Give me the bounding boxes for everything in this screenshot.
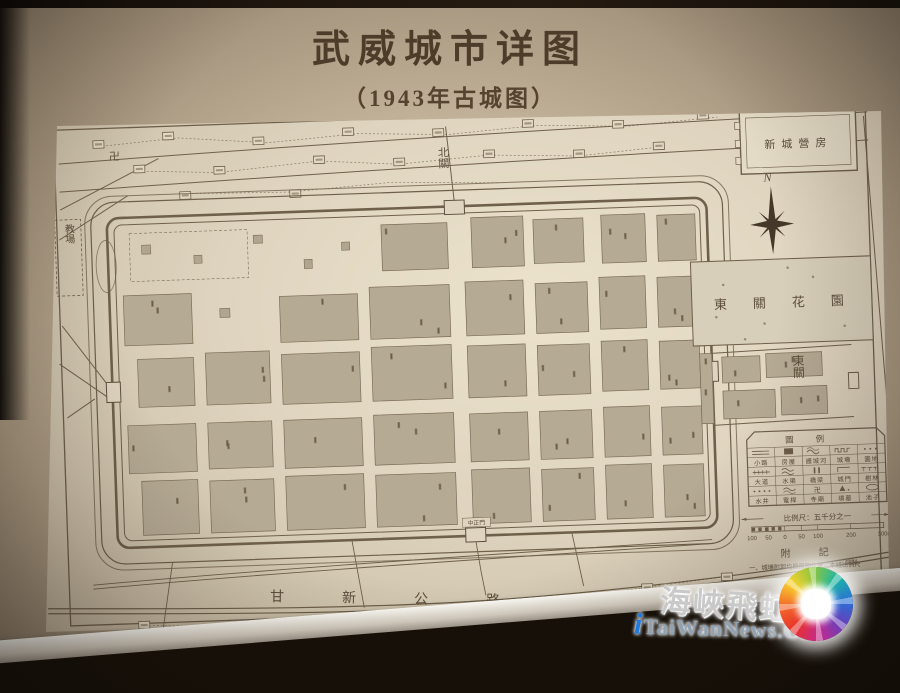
svg-text:橋梁: 橋梁 xyxy=(810,476,825,484)
suburb-trails xyxy=(98,117,720,199)
photo-left-edge xyxy=(0,0,30,420)
legend-labels: 小路 房屋 護城河 城墻 園地 大道 水渠 橋梁 城門 樹林 水井 電桿 寺廟 … xyxy=(754,455,880,506)
svg-text:電桿: 電桿 xyxy=(783,496,798,504)
svg-text:護城河: 護城河 xyxy=(806,457,828,466)
svg-text:房屋: 房屋 xyxy=(782,458,797,466)
rainbow-logo-icon xyxy=(779,567,853,641)
legend-temple-symbol: 卍 xyxy=(814,486,821,494)
exhibit-header: 武威城市详图 （1943年古城图） xyxy=(0,18,900,113)
svg-text:300m: 300m xyxy=(878,531,890,538)
temple-swastika-icon: 卍 xyxy=(109,150,120,163)
svg-text:池子: 池子 xyxy=(866,493,881,501)
svg-text:城墻: 城墻 xyxy=(837,456,852,464)
svg-text:100: 100 xyxy=(813,534,823,540)
label-north-suburb: 北關 xyxy=(436,146,449,169)
svg-text:100: 100 xyxy=(747,536,757,542)
west-gate xyxy=(106,382,121,402)
page-title: 武威城市详图 xyxy=(0,18,900,73)
map-panel: 卍 北關 新城營房 教場 xyxy=(46,104,890,634)
compass-north-label: N xyxy=(762,170,772,184)
scale-ticks: 100 50 0 50 100 200 300m xyxy=(747,531,890,542)
svg-text:寺廟: 寺廟 xyxy=(810,495,825,503)
legend-symbols-row1 xyxy=(752,445,877,456)
svg-text:水井: 水井 xyxy=(755,497,770,505)
svg-text:樹林: 樹林 xyxy=(865,474,880,482)
svg-text:小路: 小路 xyxy=(754,459,769,467)
notes-title: 附記 xyxy=(780,544,856,560)
label-east-suburb: 東關 xyxy=(791,354,806,379)
label-drill-ground: 教場 xyxy=(62,222,75,244)
museum-photo: 武威城市详图 （1943年古城图） xyxy=(0,0,900,693)
svg-text:50: 50 xyxy=(798,534,805,540)
north-gate xyxy=(444,200,464,215)
compass-rose-icon xyxy=(749,185,795,254)
legend-title: 圖例 xyxy=(785,433,846,445)
page-subtitle: （1943年古城图） xyxy=(0,79,900,113)
svg-text:水渠: 水渠 xyxy=(782,477,797,485)
svg-text:50: 50 xyxy=(765,535,772,541)
svg-text:200: 200 xyxy=(846,532,856,538)
svg-text:城門: 城門 xyxy=(837,476,852,483)
svg-text:園地: 園地 xyxy=(864,455,879,463)
svg-text:墳墓: 墳墓 xyxy=(838,494,853,502)
south-gate xyxy=(466,527,486,542)
photo-top-edge xyxy=(0,0,900,8)
scale-title: 比例尺：五千分之一 xyxy=(783,511,851,523)
city-map: 卍 北關 新城營房 教場 xyxy=(46,104,890,634)
svg-text:大道: 大道 xyxy=(755,478,770,486)
scale-bar: 比例尺：五千分之一 100 50 0 50 xyxy=(741,509,890,542)
west-roads xyxy=(58,324,111,418)
svg-text:0: 0 xyxy=(783,535,786,541)
legend-box: 圖例 xyxy=(746,427,886,506)
